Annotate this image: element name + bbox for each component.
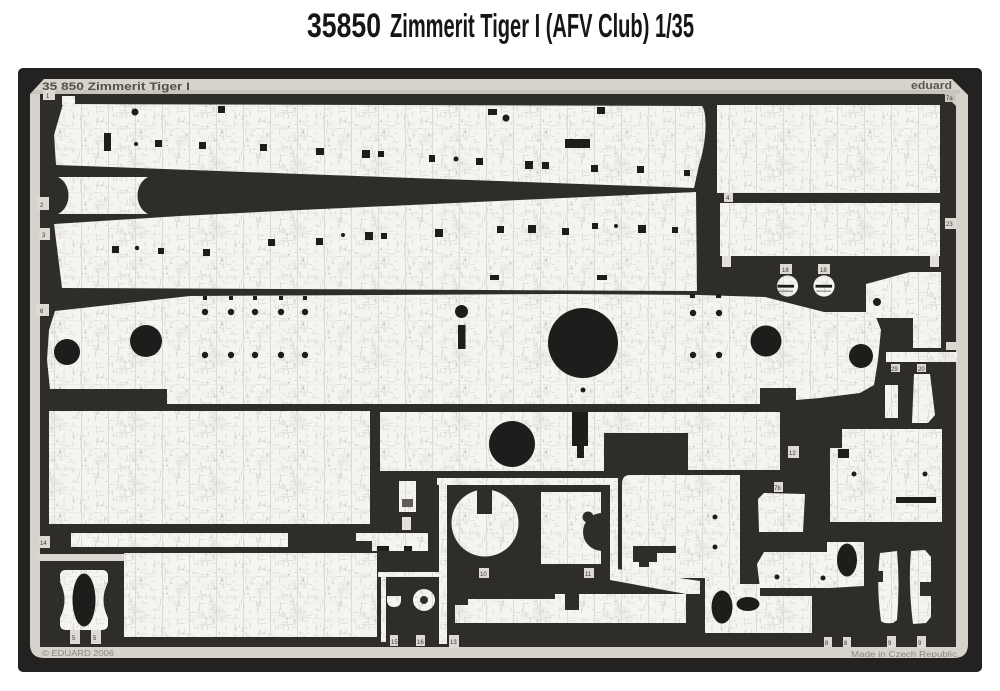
svg-text:11: 11 bbox=[585, 572, 592, 578]
svg-text:13: 13 bbox=[450, 640, 457, 646]
svg-text:12: 12 bbox=[789, 451, 796, 457]
svg-text:35 850 Zimmerit Tiger I: 35 850 Zimmerit Tiger I bbox=[42, 81, 190, 93]
svg-text:23: 23 bbox=[946, 222, 953, 228]
svg-text:16: 16 bbox=[417, 640, 424, 646]
svg-text:35850: 35850 bbox=[307, 7, 381, 45]
svg-text:© EDUARD 2006: © EDUARD 2006 bbox=[42, 649, 115, 658]
svg-text:14: 14 bbox=[40, 541, 47, 547]
svg-text:7a: 7a bbox=[946, 96, 953, 102]
svg-text:15: 15 bbox=[391, 640, 398, 646]
svg-text:Made in Czech Republic: Made in Czech Republic bbox=[851, 650, 957, 659]
svg-text:Zimmerit Tiger I (AFV Club): Zimmerit Tiger I (AFV Club) 1/35 bbox=[390, 7, 694, 44]
svg-text:18: 18 bbox=[782, 268, 789, 274]
svg-text:10: 10 bbox=[480, 572, 487, 578]
svg-text:18: 18 bbox=[820, 268, 827, 274]
svg-text:7b: 7b bbox=[774, 486, 781, 492]
svg-text:eduard: eduard bbox=[911, 80, 952, 92]
svg-text:29: 29 bbox=[891, 367, 898, 373]
svg-text:20: 20 bbox=[918, 367, 925, 373]
